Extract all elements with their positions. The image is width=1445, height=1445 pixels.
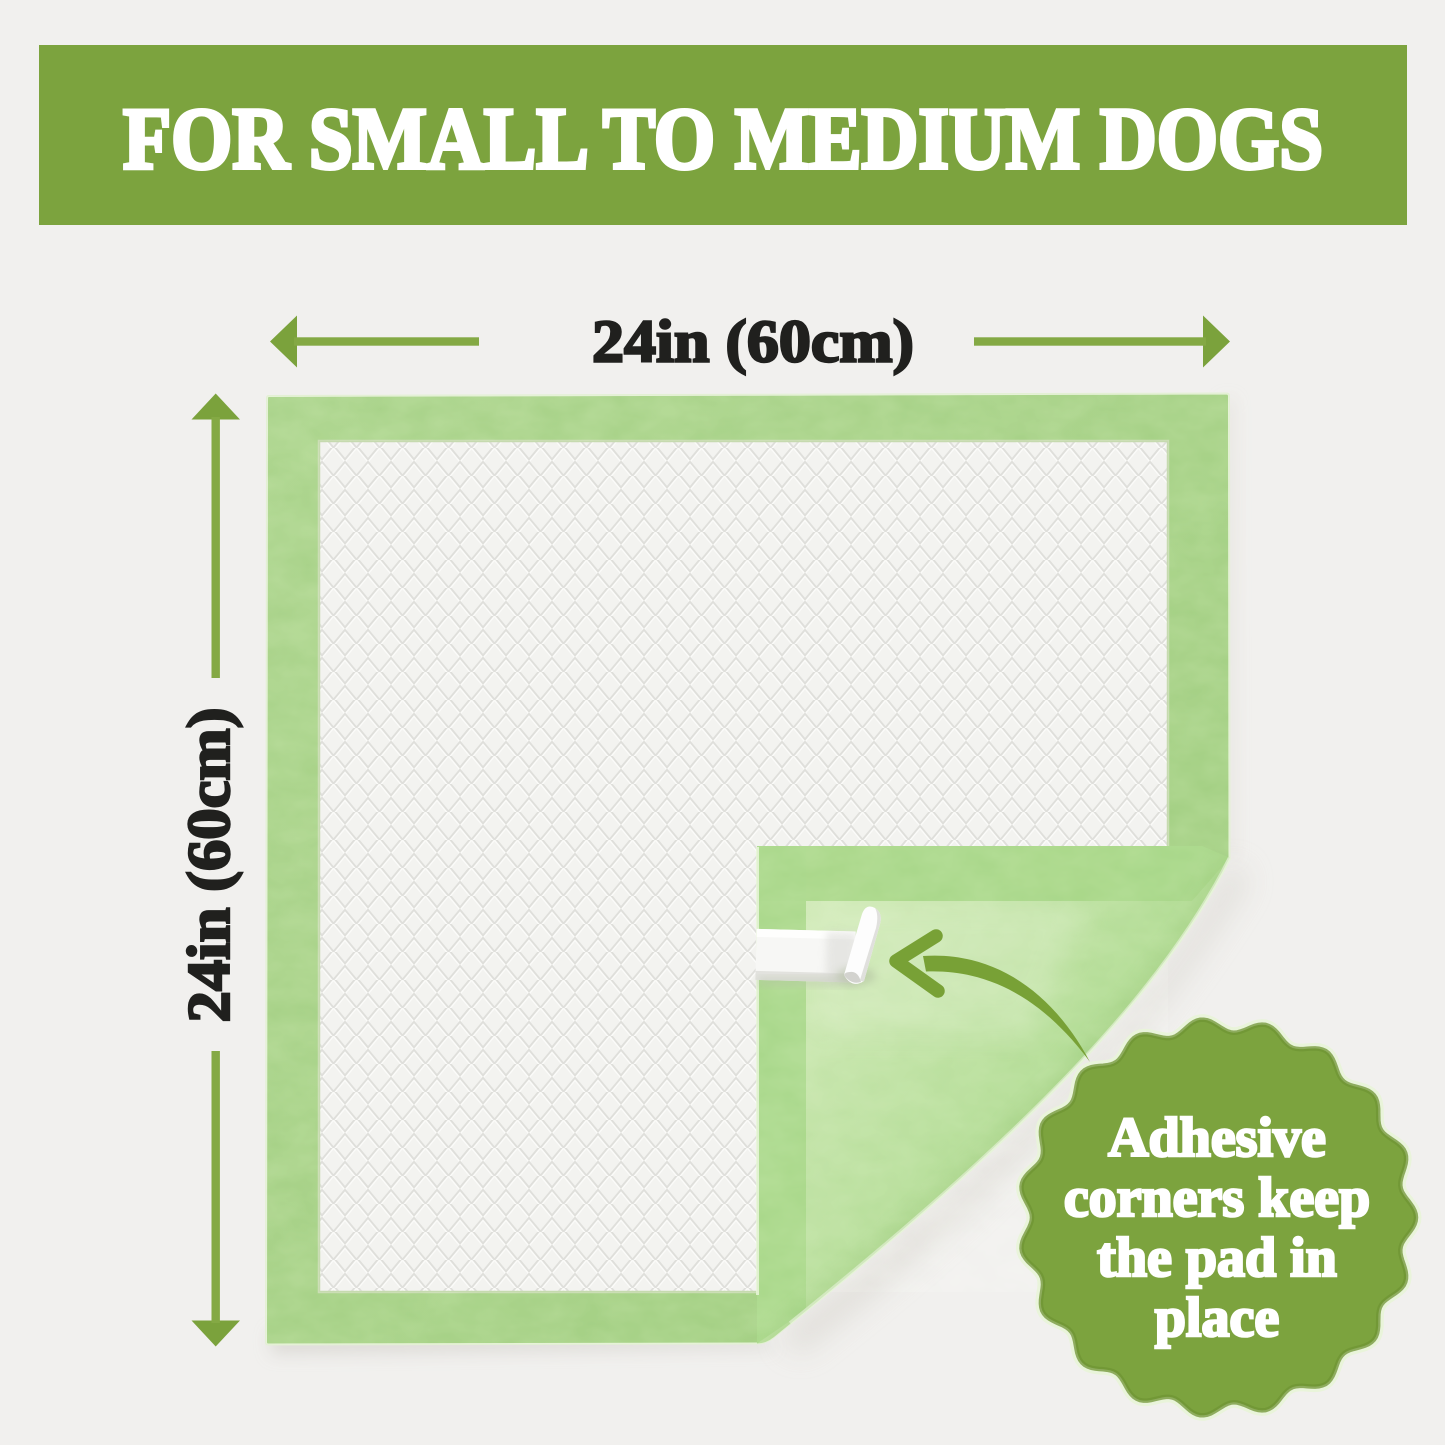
svg-text:place: place [1155, 1287, 1279, 1349]
svg-text:FOR SMALL TO MEDIUM DOGS: FOR SMALL TO MEDIUM DOGS [123, 91, 1323, 188]
svg-text:24in (60cm): 24in (60cm) [592, 309, 914, 375]
svg-text:Adhesive: Adhesive [1108, 1107, 1326, 1169]
svg-text:corners keep: corners keep [1064, 1167, 1370, 1229]
svg-text:24in (60cm): 24in (60cm) [176, 708, 242, 1023]
svg-text:the pad in: the pad in [1097, 1227, 1337, 1289]
